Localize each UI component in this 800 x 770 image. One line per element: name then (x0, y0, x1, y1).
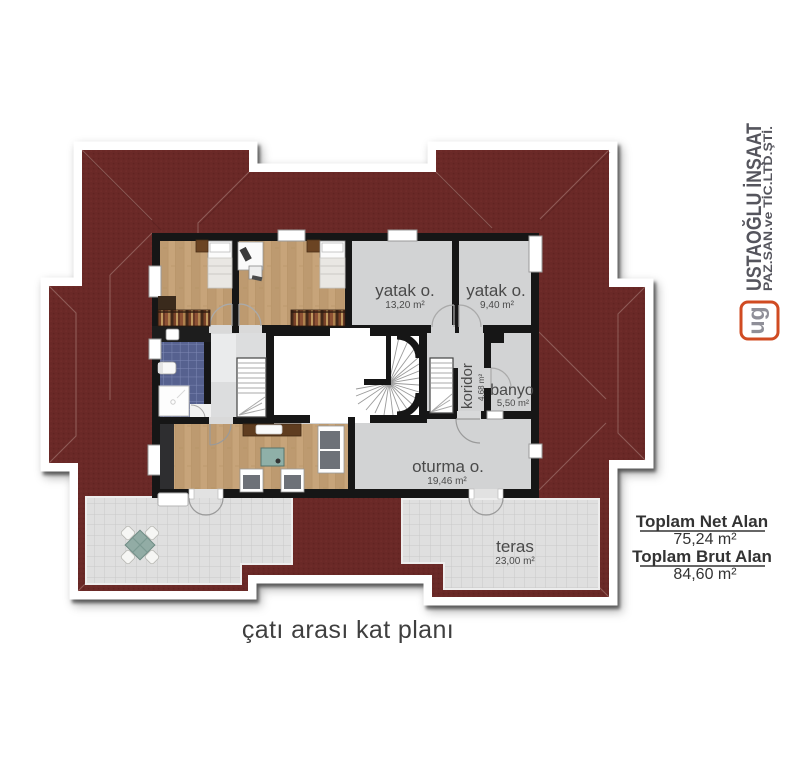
svg-text:Toplam Brut Alan: Toplam Brut Alan (632, 547, 772, 566)
svg-text:yatak o.: yatak o. (375, 281, 435, 300)
svg-text:19,46 m²: 19,46 m² (427, 476, 467, 487)
svg-text:teras: teras (496, 537, 534, 556)
svg-text:yatak o.: yatak o. (466, 281, 526, 300)
svg-text:4,68 m²: 4,68 m² (477, 374, 486, 401)
svg-text:75,24 m²: 75,24 m² (673, 531, 737, 548)
svg-text:koridor: koridor (459, 363, 476, 409)
svg-text:PAZ.SAN.ve TİC.LTD.ŞTİ.: PAZ.SAN.ve TİC.LTD.ŞTİ. (760, 126, 775, 291)
svg-text:23,00 m²: 23,00 m² (495, 556, 535, 567)
svg-text:oturma o.: oturma o. (412, 457, 484, 476)
svg-text:çatı arası kat planı: çatı arası kat planı (242, 616, 454, 644)
svg-text:Toplam Net Alan: Toplam Net Alan (636, 512, 768, 531)
svg-text:banyo: banyo (490, 382, 534, 399)
svg-text:13,20 m²: 13,20 m² (385, 300, 425, 311)
svg-text:ug: ug (743, 306, 769, 334)
svg-text:84,60 m²: 84,60 m² (673, 566, 737, 583)
svg-text:5,50 m²: 5,50 m² (497, 398, 529, 409)
svg-text:9,40 m²: 9,40 m² (480, 300, 515, 311)
